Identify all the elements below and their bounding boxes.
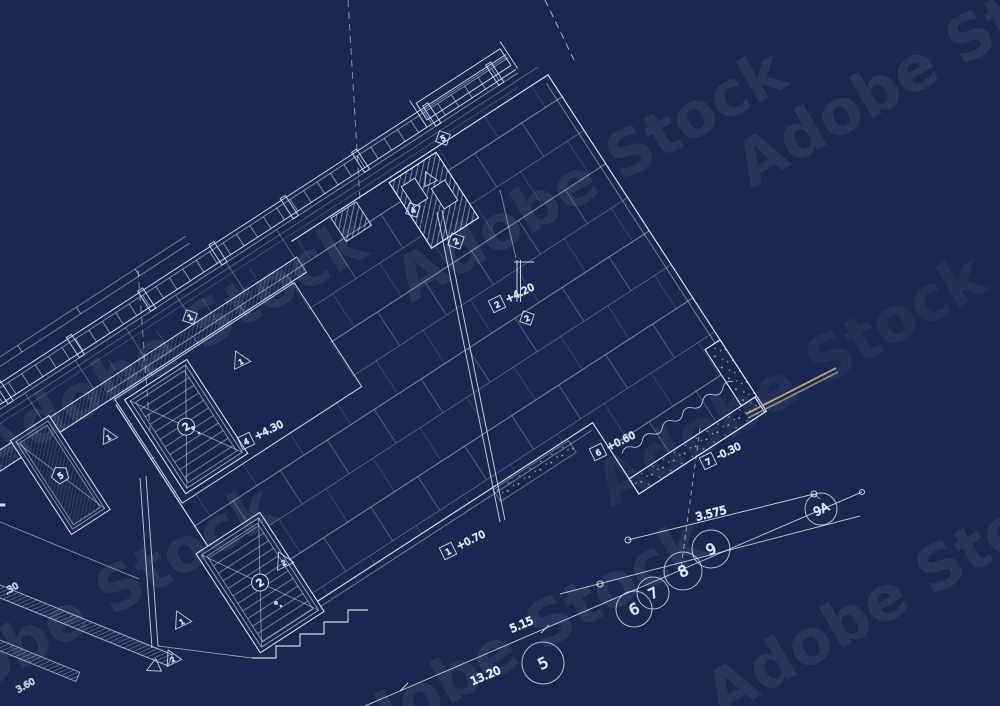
triangle-1c: 1 [178,618,186,627]
watermark-side-id: Adobe Stock | #987592501 [0,293,6,706]
svg-text:7: 7 [704,457,713,467]
bubble-9a: 9A [811,499,832,519]
elevation-0-70: 1 +0.70 [439,527,487,559]
triangle-1a: 1 [237,358,245,367]
window-panel: 5 [10,416,110,535]
svg-text:4: 4 [242,437,251,447]
bubble-5: 5 [535,653,551,673]
dim-13-20: 13.20 [469,664,503,688]
dimension-line-c: 3.575 [625,491,820,543]
svg-text:+0.70: +0.70 [455,529,487,552]
blueprint-drawing: 2 2 5 [0,0,1000,706]
bubble-7: 7 [646,585,661,603]
dim-3-60: 3.60 [15,677,38,696]
svg-text:-0.30: -0.30 [715,441,743,462]
blueprint-photo: 2 2 5 [0,0,1000,706]
bubble-8: 8 [675,561,691,581]
grid-bubbles: 5 6 7 8 9 9A [522,493,837,684]
svg-text:6: 6 [594,448,603,458]
triangle-1b: 1 [105,433,112,442]
dim-3-575: 3.575 [694,503,728,523]
svg-text:1: 1 [444,547,453,557]
triangle-2b: 2 [169,655,176,664]
dim-5-15: 5.15 [508,614,536,636]
